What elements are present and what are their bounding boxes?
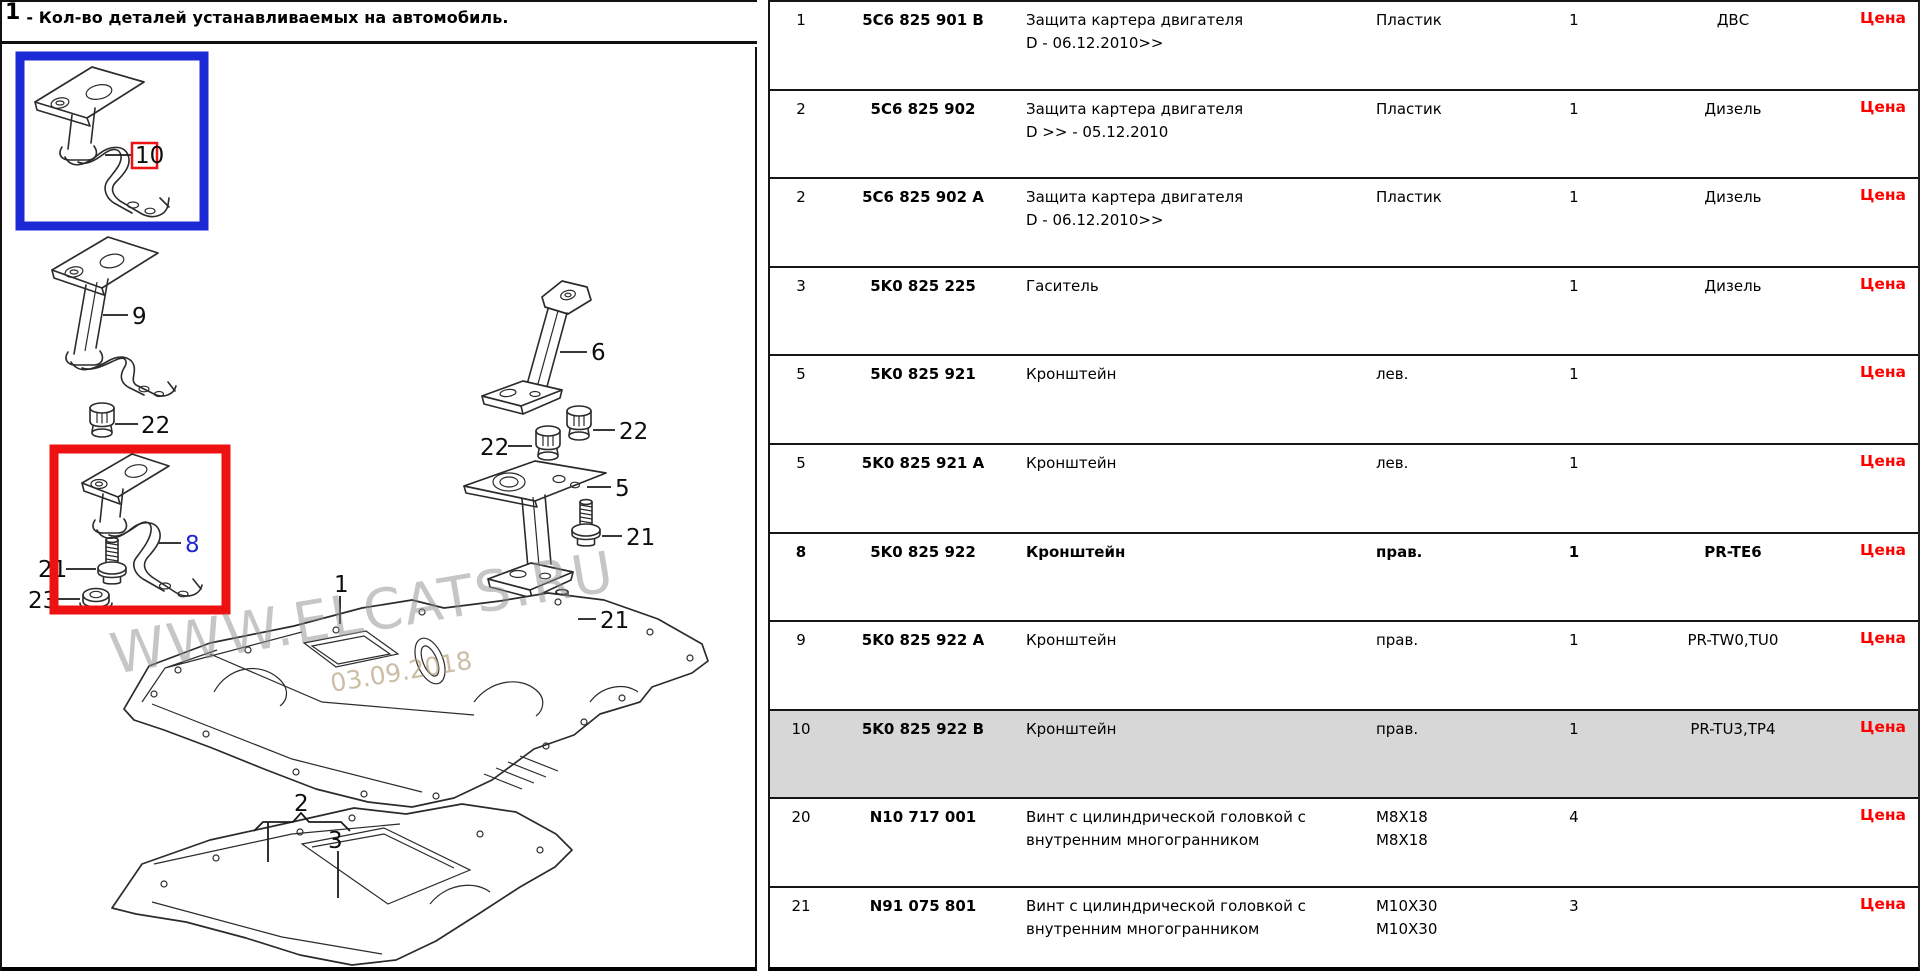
- col-model-line: прав.: [1376, 629, 1542, 652]
- col-part-number: 5K0 825 922 B: [832, 711, 1014, 798]
- col-position-line: 2: [770, 98, 832, 121]
- col-qty: 1: [1542, 268, 1606, 355]
- col-part-number: 5K0 825 225: [832, 268, 1014, 355]
- note-text: - Кол-во деталей устанавливаемых на авто…: [26, 8, 508, 27]
- col-name: Кронштейн: [1014, 622, 1364, 709]
- col-modification-line: ДВС: [1606, 9, 1860, 32]
- col-price: Цена: [1860, 799, 1918, 886]
- col-modification: PR-TU3,TP4: [1606, 711, 1860, 798]
- callout-label-22b[interactable]: 22: [619, 419, 648, 445]
- parts-catalog-page: 1 - Кол-во деталей устанавливаемых на ав…: [0, 0, 1920, 971]
- col-name-line: внутренним многогранником: [1026, 829, 1364, 852]
- table-row[interactable]: 21N91 075 801Винт с цилиндрической голов…: [770, 888, 1918, 971]
- col-model-line: Пластик: [1376, 9, 1542, 32]
- col-name-line: Кронштейн: [1026, 629, 1364, 652]
- col-modification: [1606, 445, 1860, 532]
- col-model: M10X30M10X30: [1364, 888, 1542, 971]
- col-position: 21: [770, 888, 832, 971]
- col-model-line: лев.: [1376, 363, 1542, 386]
- bolt-21-drawing: [98, 538, 126, 584]
- col-position: 10: [770, 711, 832, 798]
- nut-22-drawing: [90, 403, 114, 437]
- callout-label-5[interactable]: 5: [615, 476, 630, 502]
- bolt-21-drawing: [572, 500, 600, 546]
- note-superscript: 1: [5, 2, 20, 24]
- diagram-panel: 1 - Кол-во деталей устанавливаемых на ав…: [0, 0, 757, 971]
- col-name: Защита картера двигателяD - 06.12.2010>>: [1014, 2, 1364, 89]
- col-name: Кронштейн: [1014, 356, 1364, 443]
- col-modification: Дизель: [1606, 268, 1860, 355]
- callout-label-10[interactable]: 10: [135, 143, 164, 169]
- col-model-line: прав.: [1376, 718, 1542, 741]
- col-modification-line: Дизель: [1606, 275, 1860, 298]
- col-part-number-line: 5C6 825 901 B: [832, 9, 1014, 32]
- col-position-line: 8: [770, 541, 832, 564]
- col-qty-line: 1: [1542, 275, 1606, 298]
- col-price: Цена: [1860, 534, 1918, 621]
- col-model: прав.: [1364, 534, 1542, 621]
- col-modification-line: PR-TE6: [1606, 541, 1860, 564]
- col-part-number-line: 5C6 825 902: [832, 98, 1014, 121]
- col-qty-line: 1: [1542, 363, 1606, 386]
- callout-label-22a[interactable]: 22: [141, 413, 170, 439]
- col-name-line: Кронштейн: [1026, 452, 1364, 475]
- col-model-line: M10X30: [1376, 895, 1542, 918]
- col-modification: [1606, 888, 1860, 971]
- col-qty-line: 3: [1542, 895, 1606, 918]
- col-name-line: D - 06.12.2010>>: [1026, 209, 1364, 232]
- table-row[interactable]: 20N10 717 001Винт с цилиндрической голов…: [770, 799, 1918, 888]
- nut-22-drawing: [536, 426, 560, 460]
- col-model: лев.: [1364, 445, 1542, 532]
- table-row[interactable]: 55K0 825 921Кронштейнлев.1Цена: [770, 356, 1918, 445]
- col-part-number: 5K0 825 922 A: [832, 622, 1014, 709]
- col-part-number-line: 5K0 825 922 A: [832, 629, 1014, 652]
- callout-label-3[interactable]: 3: [328, 828, 343, 854]
- col-part-number-line: 5C6 825 902 A: [832, 186, 1014, 209]
- col-position-line: 9: [770, 629, 832, 652]
- col-name: Кронштейн: [1014, 534, 1364, 621]
- price-link[interactable]: Цена: [1860, 541, 1906, 559]
- col-position: 3: [770, 268, 832, 355]
- col-qty: 1: [1542, 179, 1606, 266]
- col-name-line: Винт с цилиндрической головкой с: [1026, 895, 1364, 918]
- col-qty: 1: [1542, 2, 1606, 89]
- parts-table-body: 15C6 825 901 BЗащита картера двигателяD …: [770, 2, 1918, 971]
- col-model: [1364, 268, 1542, 355]
- col-part-number-line: N10 717 001: [832, 806, 1014, 829]
- col-model-line: Пластик: [1376, 186, 1542, 209]
- col-qty-line: 1: [1542, 541, 1606, 564]
- col-price: Цена: [1860, 711, 1918, 798]
- table-row[interactable]: 105K0 825 922 BКронштейнправ.1PR-TU3,TP4…: [770, 711, 1918, 800]
- col-modification-line: PR-TU3,TP4: [1606, 718, 1860, 741]
- price-link[interactable]: Цена: [1860, 895, 1906, 913]
- col-name-line: Кронштейн: [1026, 541, 1364, 564]
- col-position: 20: [770, 799, 832, 886]
- col-modification: PR-TE6: [1606, 534, 1860, 621]
- col-qty-line: 1: [1542, 452, 1606, 475]
- nut-22-drawing: [567, 406, 591, 440]
- col-model-line: прав.: [1376, 541, 1542, 564]
- parts-diagram: 10 9 22 8 21 23 1 6 22 22 5 21 21 2 3: [2, 47, 757, 971]
- price-link[interactable]: Цена: [1860, 806, 1906, 824]
- part-9-drawing: [52, 237, 176, 397]
- col-name-line: Кронштейн: [1026, 718, 1364, 741]
- col-name-line: Защита картера двигателя: [1026, 98, 1364, 121]
- col-part-number: 5C6 825 902 A: [832, 179, 1014, 266]
- parts-table: 15C6 825 901 BЗащита картера двигателяD …: [768, 0, 1920, 971]
- col-part-number: 5K0 825 921: [832, 356, 1014, 443]
- price-link[interactable]: Цена: [1860, 275, 1906, 293]
- col-model: лев.: [1364, 356, 1542, 443]
- col-part-number: N10 717 001: [832, 799, 1014, 886]
- col-position-line: 10: [770, 718, 832, 741]
- table-row[interactable]: 25C6 825 902Защита картера двигателяD >>…: [770, 91, 1918, 180]
- callout-label-21c[interactable]: 21: [600, 608, 629, 634]
- col-price: Цена: [1860, 91, 1918, 178]
- col-price: Цена: [1860, 445, 1918, 532]
- col-qty-line: 1: [1542, 718, 1606, 741]
- col-price: Цена: [1860, 2, 1918, 89]
- col-position-line: 1: [770, 9, 832, 32]
- col-part-number: 5K0 825 922: [832, 534, 1014, 621]
- price-link[interactable]: Цена: [1860, 718, 1906, 736]
- callout-label-6[interactable]: 6: [591, 340, 606, 366]
- col-part-number-line: 5K0 825 921: [832, 363, 1014, 386]
- col-qty: 3: [1542, 888, 1606, 971]
- col-modification: [1606, 799, 1860, 886]
- col-price: Цена: [1860, 268, 1918, 355]
- col-name: Кронштейн: [1014, 445, 1364, 532]
- col-position: 9: [770, 622, 832, 709]
- callout-label-2[interactable]: 2: [294, 791, 309, 817]
- col-position: 8: [770, 534, 832, 621]
- col-position: 1: [770, 2, 832, 89]
- col-position-line: 20: [770, 806, 832, 829]
- price-link[interactable]: Цена: [1860, 629, 1906, 647]
- col-name: Кронштейн: [1014, 711, 1364, 798]
- col-qty: 4: [1542, 799, 1606, 886]
- col-qty: 1: [1542, 622, 1606, 709]
- table-row[interactable]: 15C6 825 901 BЗащита картера двигателяD …: [770, 2, 1918, 91]
- col-model: прав.: [1364, 622, 1542, 709]
- price-link[interactable]: Цена: [1860, 363, 1906, 381]
- col-position-line: 5: [770, 452, 832, 475]
- col-model-line: M8X18: [1376, 806, 1542, 829]
- callout-label-21b[interactable]: 21: [626, 525, 655, 551]
- col-price: Цена: [1860, 888, 1918, 971]
- col-name-line: Кронштейн: [1026, 363, 1364, 386]
- col-name: Гаситель: [1014, 268, 1364, 355]
- col-model: M8X18M8X18: [1364, 799, 1542, 886]
- col-model-line: M8X18: [1376, 829, 1542, 852]
- col-name: Защита картера двигателяD - 06.12.2010>>: [1014, 179, 1364, 266]
- col-qty: 1: [1542, 534, 1606, 621]
- table-row[interactable]: 35K0 825 225Гаситель1ДизельЦена: [770, 268, 1918, 357]
- col-modification: PR-TW0,TU0: [1606, 622, 1860, 709]
- col-position: 2: [770, 179, 832, 266]
- col-qty-line: 1: [1542, 186, 1606, 209]
- col-part-number: 5K0 825 921 A: [832, 445, 1014, 532]
- col-price: Цена: [1860, 622, 1918, 709]
- col-price: Цена: [1860, 179, 1918, 266]
- col-position: 2: [770, 91, 832, 178]
- col-position: 5: [770, 445, 832, 532]
- price-link[interactable]: Цена: [1860, 452, 1906, 470]
- col-position: 5: [770, 356, 832, 443]
- table-row[interactable]: 25C6 825 902 AЗащита картера двигателяD …: [770, 179, 1918, 268]
- col-position-line: 21: [770, 895, 832, 918]
- col-price: Цена: [1860, 356, 1918, 443]
- col-qty: 1: [1542, 91, 1606, 178]
- col-model: Пластик: [1364, 2, 1542, 89]
- col-qty-line: 1: [1542, 9, 1606, 32]
- price-link[interactable]: Цена: [1860, 186, 1906, 204]
- col-model-line: M10X30: [1376, 918, 1542, 941]
- price-link[interactable]: Цена: [1860, 98, 1906, 116]
- col-modification: Дизель: [1606, 91, 1860, 178]
- col-name-line: внутренним многогранником: [1026, 918, 1364, 941]
- col-name: Винт с цилиндрической головкой свнутренн…: [1014, 799, 1364, 886]
- col-position-line: 2: [770, 186, 832, 209]
- col-position-line: 3: [770, 275, 832, 298]
- col-name-line: D >> - 05.12.2010: [1026, 121, 1364, 144]
- col-part-number: 5C6 825 902: [832, 91, 1014, 178]
- col-name-line: Гаситель: [1026, 275, 1364, 298]
- col-name: Защита картера двигателяD >> - 05.12.201…: [1014, 91, 1364, 178]
- price-link[interactable]: Цена: [1860, 9, 1906, 27]
- col-part-number-line: 5K0 825 921 A: [832, 452, 1014, 475]
- col-name-line: Защита картера двигателя: [1026, 186, 1364, 209]
- part-6-drawing: [482, 281, 591, 414]
- col-qty: 1: [1542, 445, 1606, 532]
- diagram-note: 1 - Кол-во деталей устанавливаемых на ав…: [2, 2, 757, 44]
- callout-label-9[interactable]: 9: [132, 304, 147, 330]
- callout-label-8[interactable]: 8: [185, 532, 200, 558]
- diagram-canvas: 10 9 22 8 21 23 1 6 22 22 5 21 21 2 3: [2, 47, 757, 971]
- table-row[interactable]: 95K0 825 922 AКронштейнправ.1PR-TW0,TU0Ц…: [770, 622, 1918, 711]
- col-model-line: Пластик: [1376, 98, 1542, 121]
- col-part-number: 5C6 825 901 B: [832, 2, 1014, 89]
- col-part-number: N91 075 801: [832, 888, 1014, 971]
- col-part-number-line: 5K0 825 225: [832, 275, 1014, 298]
- col-qty-line: 4: [1542, 806, 1606, 829]
- col-model: прав.: [1364, 711, 1542, 798]
- col-qty: 1: [1542, 711, 1606, 798]
- col-model: Пластик: [1364, 179, 1542, 266]
- col-modification-line: PR-TW0,TU0: [1606, 629, 1860, 652]
- col-part-number-line: 5K0 825 922 B: [832, 718, 1014, 741]
- col-model-line: лев.: [1376, 452, 1542, 475]
- col-name-line: D - 06.12.2010>>: [1026, 32, 1364, 55]
- col-model: Пластик: [1364, 91, 1542, 178]
- col-name-line: Защита картера двигателя: [1026, 9, 1364, 32]
- col-modification: ДВС: [1606, 2, 1860, 89]
- col-modification: Дизель: [1606, 179, 1860, 266]
- col-qty-line: 1: [1542, 629, 1606, 652]
- col-qty-line: 1: [1542, 98, 1606, 121]
- col-modification: [1606, 356, 1860, 443]
- col-name-line: Винт с цилиндрической головкой с: [1026, 806, 1364, 829]
- col-part-number-line: N91 075 801: [832, 895, 1014, 918]
- col-modification-line: Дизель: [1606, 186, 1860, 209]
- callout-label-22c[interactable]: 22: [480, 435, 509, 461]
- table-row[interactable]: 85K0 825 922Кронштейнправ.1PR-TE6Цена: [770, 534, 1918, 623]
- col-qty: 1: [1542, 356, 1606, 443]
- col-modification-line: Дизель: [1606, 98, 1860, 121]
- col-position-line: 5: [770, 363, 832, 386]
- col-name: Винт с цилиндрической головкой свнутренн…: [1014, 888, 1364, 971]
- table-row[interactable]: 55K0 825 921 AКронштейнлев.1Цена: [770, 445, 1918, 534]
- col-part-number-line: 5K0 825 922: [832, 541, 1014, 564]
